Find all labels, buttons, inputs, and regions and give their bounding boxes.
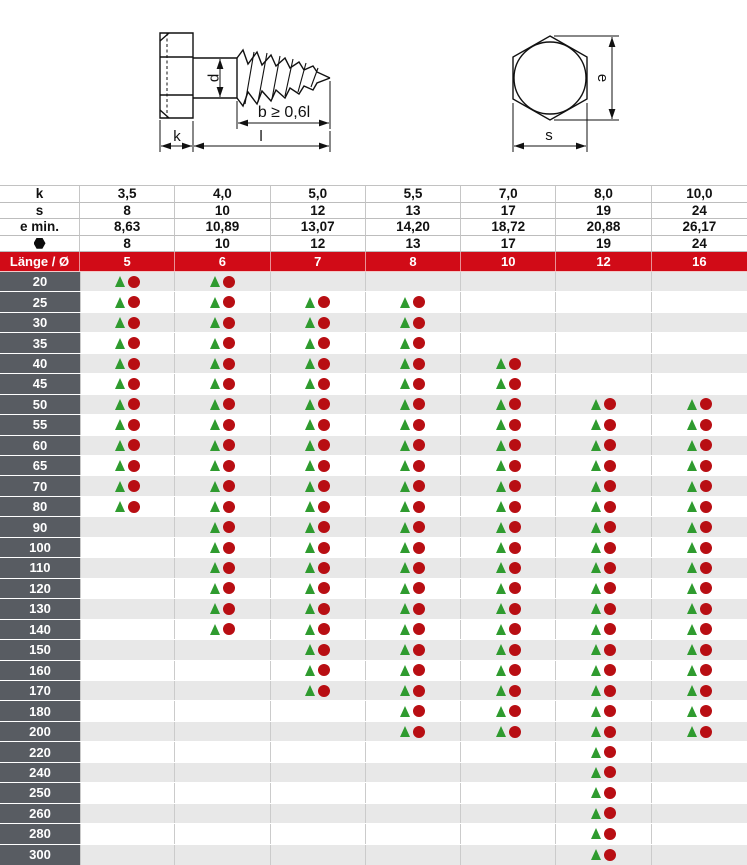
- availability-cell: [652, 374, 747, 393]
- spec-value: 17: [461, 236, 556, 253]
- red-circle-marker: [318, 603, 330, 615]
- dim-label-e: e: [594, 74, 611, 82]
- availability-cell: [175, 722, 270, 741]
- spec-value: 14,20: [366, 219, 461, 236]
- red-circle-marker: [318, 419, 330, 431]
- availability-cell: [175, 640, 270, 659]
- availability-cell: [556, 722, 651, 741]
- availability-cell: [652, 599, 747, 618]
- green-triangle-marker: [496, 378, 506, 389]
- availability-cell: [461, 538, 556, 557]
- availability-cell: [175, 742, 270, 761]
- availability-cell: [556, 640, 651, 659]
- red-circle-marker: [318, 358, 330, 370]
- spec-value: 24: [652, 203, 747, 220]
- green-triangle-marker: [591, 685, 601, 696]
- red-circle-marker: [604, 480, 616, 492]
- red-circle-marker: [604, 685, 616, 697]
- red-circle-marker: [700, 644, 712, 656]
- availability-cell: [556, 292, 651, 311]
- availability-cell: [366, 579, 461, 598]
- availability-cell: [271, 804, 366, 823]
- green-triangle-marker: [115, 378, 125, 389]
- availability-cell: [175, 292, 270, 311]
- availability-cell: [556, 742, 651, 761]
- spec-value: 19: [556, 236, 651, 253]
- red-circle-marker: [700, 726, 712, 738]
- red-circle-marker: [509, 480, 521, 492]
- red-circle-marker: [223, 623, 235, 635]
- length-label: 170: [0, 681, 80, 700]
- red-circle-marker: [318, 460, 330, 472]
- availability-cell: [366, 681, 461, 700]
- availability-cell: [652, 517, 747, 536]
- availability-cell: [175, 804, 270, 823]
- green-triangle-marker: [496, 583, 506, 594]
- availability-cell: [271, 845, 366, 865]
- spec-value: 3,5: [80, 186, 175, 203]
- green-triangle-marker: [400, 297, 410, 308]
- green-triangle-marker: [496, 440, 506, 451]
- availability-cell: [271, 701, 366, 720]
- green-triangle-marker: [496, 726, 506, 737]
- availability-cell: [652, 395, 747, 414]
- availability-cell: [271, 558, 366, 577]
- diameter-value: 16: [652, 252, 747, 271]
- hex-nut-icon: [34, 238, 46, 249]
- red-circle-marker: [509, 562, 521, 574]
- length-label: 50: [0, 395, 80, 414]
- spec-value: 8: [80, 203, 175, 220]
- availability-cell: [80, 292, 175, 311]
- green-triangle-marker: [591, 706, 601, 717]
- availability-cell: [80, 517, 175, 536]
- availability-cell: [175, 783, 270, 802]
- green-triangle-marker: [305, 297, 315, 308]
- availability-cell: [461, 845, 556, 865]
- availability-cell: [461, 354, 556, 373]
- availability-cell: [175, 681, 270, 700]
- availability-cell: [366, 620, 461, 639]
- green-triangle-marker: [591, 644, 601, 655]
- green-triangle-marker: [305, 542, 315, 553]
- green-triangle-marker: [210, 562, 220, 573]
- availability-cell: [652, 824, 747, 843]
- green-triangle-marker: [115, 338, 125, 349]
- red-circle-marker: [318, 664, 330, 676]
- spec-value: 26,17: [652, 219, 747, 236]
- green-triangle-marker: [305, 338, 315, 349]
- availability-cell: [652, 845, 747, 865]
- length-label: 90: [0, 517, 80, 536]
- green-triangle-marker: [210, 460, 220, 471]
- red-circle-marker: [413, 296, 425, 308]
- availability-cell: [461, 763, 556, 782]
- availability-cell: [80, 824, 175, 843]
- availability-cell: [175, 763, 270, 782]
- length-label: 160: [0, 661, 80, 680]
- red-circle-marker: [128, 501, 140, 513]
- green-triangle-marker: [591, 419, 601, 430]
- availability-cell: [80, 640, 175, 659]
- length-label: 25: [0, 292, 80, 311]
- availability-cell: [652, 313, 747, 332]
- spec-label-wrench-size: [0, 236, 80, 253]
- availability-cell: [556, 824, 651, 843]
- length-row-35: 35: [0, 333, 747, 353]
- length-row-30: 30: [0, 313, 747, 333]
- dim-label-s: s: [545, 127, 553, 144]
- availability-cell: [80, 579, 175, 598]
- availability-cell: [271, 538, 366, 557]
- dim-label-l: l: [259, 128, 262, 145]
- red-circle-marker: [509, 419, 521, 431]
- availability-cell: [652, 681, 747, 700]
- red-circle-marker: [318, 296, 330, 308]
- length-row-170: 170: [0, 681, 747, 701]
- green-triangle-marker: [591, 767, 601, 778]
- green-triangle-marker: [591, 665, 601, 676]
- availability-cell: [271, 456, 366, 475]
- availability-cell: [652, 701, 747, 720]
- availability-cell: [80, 763, 175, 782]
- red-circle-marker: [700, 562, 712, 574]
- green-triangle-marker: [400, 317, 410, 328]
- red-circle-marker: [604, 828, 616, 840]
- green-triangle-marker: [496, 685, 506, 696]
- green-triangle-marker: [400, 460, 410, 471]
- red-circle-marker: [604, 419, 616, 431]
- red-circle-marker: [509, 582, 521, 594]
- green-triangle-marker: [400, 706, 410, 717]
- green-triangle-marker: [305, 378, 315, 389]
- availability-cell: [556, 476, 651, 495]
- green-triangle-marker: [400, 378, 410, 389]
- red-circle-marker: [604, 664, 616, 676]
- green-triangle-marker: [496, 665, 506, 676]
- length-row-140: 140: [0, 620, 747, 640]
- red-circle-marker: [413, 603, 425, 615]
- availability-cell: [556, 620, 651, 639]
- availability-cell: [175, 579, 270, 598]
- diameter-value: 8: [366, 252, 461, 271]
- length-label: 35: [0, 333, 80, 352]
- red-circle-marker: [604, 746, 616, 758]
- availability-cell: [80, 395, 175, 414]
- red-circle-marker: [604, 705, 616, 717]
- spec-value: 12: [271, 203, 366, 220]
- availability-cell: [461, 395, 556, 414]
- red-circle-marker: [604, 562, 616, 574]
- green-triangle-marker: [591, 542, 601, 553]
- availability-cell: [556, 661, 651, 680]
- availability-cell: [175, 497, 270, 516]
- green-triangle-marker: [591, 726, 601, 737]
- availability-cell: [80, 558, 175, 577]
- availability-cell: [366, 395, 461, 414]
- green-triangle-marker: [400, 358, 410, 369]
- red-circle-marker: [128, 480, 140, 492]
- green-triangle-marker: [115, 358, 125, 369]
- availability-cell: [556, 456, 651, 475]
- availability-cell: [461, 497, 556, 516]
- green-triangle-marker: [496, 542, 506, 553]
- availability-cell: [556, 374, 651, 393]
- green-triangle-marker: [591, 747, 601, 758]
- availability-cell: [652, 415, 747, 434]
- length-row-55: 55: [0, 415, 747, 435]
- length-row-250: 250: [0, 783, 747, 803]
- green-triangle-marker: [400, 419, 410, 430]
- availability-cell: [80, 599, 175, 618]
- green-triangle-marker: [210, 378, 220, 389]
- green-triangle-marker: [591, 583, 601, 594]
- availability-cell: [461, 415, 556, 434]
- availability-cell: [271, 272, 366, 291]
- length-row-200: 200: [0, 722, 747, 742]
- red-circle-marker: [223, 582, 235, 594]
- green-triangle-marker: [496, 501, 506, 512]
- red-circle-marker: [318, 439, 330, 451]
- availability-cell: [366, 333, 461, 352]
- length-row-25: 25: [0, 292, 747, 312]
- spec-label-head-height: k: [0, 186, 80, 203]
- red-circle-marker: [700, 460, 712, 472]
- green-triangle-marker: [591, 828, 601, 839]
- green-triangle-marker: [210, 501, 220, 512]
- green-triangle-marker: [591, 399, 601, 410]
- green-triangle-marker: [687, 501, 697, 512]
- red-circle-marker: [509, 521, 521, 533]
- availability-cell: [461, 599, 556, 618]
- green-triangle-marker: [687, 562, 697, 573]
- green-triangle-marker: [115, 276, 125, 287]
- red-circle-marker: [128, 398, 140, 410]
- length-label: 260: [0, 804, 80, 823]
- head-dimension-header: k3,54,05,05,57,08,010,0s8101213171924e m…: [0, 185, 747, 252]
- availability-cell: [80, 476, 175, 495]
- availability-cell: [271, 661, 366, 680]
- availability-cell: [652, 538, 747, 557]
- length-row-150: 150: [0, 640, 747, 660]
- availability-cell: [461, 661, 556, 680]
- length-label: 110: [0, 558, 80, 577]
- length-label: 240: [0, 763, 80, 782]
- green-triangle-marker: [305, 501, 315, 512]
- spec-value: 10: [175, 236, 270, 253]
- availability-cell: [556, 517, 651, 536]
- availability-cell: [175, 599, 270, 618]
- availability-cell: [652, 476, 747, 495]
- green-triangle-marker: [210, 276, 220, 287]
- availability-cell: [80, 783, 175, 802]
- green-triangle-marker: [687, 522, 697, 533]
- green-triangle-marker: [496, 399, 506, 410]
- length-row-70: 70: [0, 476, 747, 496]
- green-triangle-marker: [400, 665, 410, 676]
- green-triangle-marker: [687, 706, 697, 717]
- availability-cell: [175, 824, 270, 843]
- green-triangle-marker: [305, 460, 315, 471]
- red-circle-marker: [318, 521, 330, 533]
- green-triangle-marker: [305, 644, 315, 655]
- green-triangle-marker: [496, 706, 506, 717]
- availability-cell: [652, 804, 747, 823]
- green-triangle-marker: [400, 685, 410, 696]
- availability-cell: [461, 579, 556, 598]
- availability-cell: [175, 661, 270, 680]
- availability-cell: [271, 374, 366, 393]
- availability-cell: [80, 620, 175, 639]
- green-triangle-marker: [687, 542, 697, 553]
- spec-value: 24: [652, 236, 747, 253]
- green-triangle-marker: [400, 562, 410, 573]
- availability-cell: [461, 333, 556, 352]
- red-circle-marker: [509, 398, 521, 410]
- length-row-50: 50: [0, 395, 747, 415]
- green-triangle-marker: [400, 624, 410, 635]
- red-circle-marker: [413, 664, 425, 676]
- availability-cell: [461, 476, 556, 495]
- green-triangle-marker: [687, 419, 697, 430]
- availability-cell: [652, 497, 747, 516]
- green-triangle-marker: [400, 583, 410, 594]
- green-triangle-marker: [687, 644, 697, 655]
- availability-cell: [461, 681, 556, 700]
- length-label: 120: [0, 579, 80, 598]
- green-triangle-marker: [496, 460, 506, 471]
- spec-value: 20,88: [556, 219, 651, 236]
- red-circle-marker: [509, 726, 521, 738]
- red-circle-marker: [604, 787, 616, 799]
- green-triangle-marker: [305, 419, 315, 430]
- red-circle-marker: [509, 623, 521, 635]
- green-triangle-marker: [687, 603, 697, 614]
- green-triangle-marker: [496, 644, 506, 655]
- dim-label-k: k: [173, 128, 181, 145]
- availability-cell: [271, 783, 366, 802]
- availability-cell: [80, 333, 175, 352]
- green-triangle-marker: [591, 624, 601, 635]
- length-row-20: 20: [0, 272, 747, 292]
- length-row-300: 300: [0, 845, 747, 865]
- green-triangle-marker: [400, 522, 410, 533]
- green-triangle-marker: [591, 522, 601, 533]
- spec-row-head-height: k3,54,05,05,57,08,010,0: [0, 186, 747, 203]
- availability-cell: [175, 538, 270, 557]
- availability-cell: [271, 681, 366, 700]
- spec-value: 7,0: [461, 186, 556, 203]
- green-triangle-marker: [305, 317, 315, 328]
- availability-cell: [556, 538, 651, 557]
- red-circle-marker: [604, 807, 616, 819]
- availability-cell: [461, 742, 556, 761]
- red-circle-marker: [413, 562, 425, 574]
- length-row-45: 45: [0, 374, 747, 394]
- availability-cell: [652, 722, 747, 741]
- spec-value: 13: [366, 236, 461, 253]
- green-triangle-marker: [210, 399, 220, 410]
- availability-cell: [80, 436, 175, 455]
- availability-cell: [271, 824, 366, 843]
- availability-cell: [556, 415, 651, 434]
- availability-cell: [461, 272, 556, 291]
- length-label: 250: [0, 783, 80, 802]
- green-triangle-marker: [115, 317, 125, 328]
- spec-value: 12: [271, 236, 366, 253]
- red-circle-marker: [413, 521, 425, 533]
- length-row-110: 110: [0, 558, 747, 578]
- red-circle-marker: [509, 378, 521, 390]
- green-triangle-marker: [591, 460, 601, 471]
- green-triangle-marker: [115, 399, 125, 410]
- length-row-80: 80: [0, 497, 747, 517]
- green-triangle-marker: [305, 562, 315, 573]
- availability-cell: [556, 681, 651, 700]
- spec-value: 18,72: [461, 219, 556, 236]
- diameter-header-row: Länge / Ø5678101216: [0, 252, 747, 272]
- availability-cell: [366, 436, 461, 455]
- red-circle-marker: [413, 337, 425, 349]
- red-circle-marker: [318, 501, 330, 513]
- green-triangle-marker: [687, 399, 697, 410]
- availability-cell: [271, 395, 366, 414]
- availability-cell: [461, 517, 556, 536]
- green-triangle-marker: [496, 522, 506, 533]
- availability-cell: [271, 620, 366, 639]
- red-circle-marker: [604, 849, 616, 861]
- red-circle-marker: [318, 582, 330, 594]
- availability-cell: [271, 517, 366, 536]
- green-triangle-marker: [305, 685, 315, 696]
- availability-cell: [271, 722, 366, 741]
- red-circle-marker: [223, 378, 235, 390]
- green-triangle-marker: [305, 583, 315, 594]
- availability-cell: [461, 456, 556, 475]
- red-circle-marker: [128, 460, 140, 472]
- red-circle-marker: [318, 542, 330, 554]
- availability-cell: [652, 742, 747, 761]
- red-circle-marker: [128, 358, 140, 370]
- green-triangle-marker: [400, 440, 410, 451]
- green-triangle-marker: [687, 460, 697, 471]
- red-circle-marker: [700, 705, 712, 717]
- green-triangle-marker: [687, 440, 697, 451]
- availability-cell: [461, 701, 556, 720]
- red-circle-marker: [604, 542, 616, 554]
- diameter-value: 6: [175, 252, 270, 271]
- red-circle-marker: [413, 501, 425, 513]
- green-triangle-marker: [305, 481, 315, 492]
- red-circle-marker: [700, 501, 712, 513]
- length-label: 150: [0, 640, 80, 659]
- red-circle-marker: [509, 664, 521, 676]
- green-triangle-marker: [687, 624, 697, 635]
- green-triangle-marker: [687, 583, 697, 594]
- green-triangle-marker: [400, 542, 410, 553]
- availability-cell: [556, 845, 651, 865]
- green-triangle-marker: [210, 583, 220, 594]
- spec-value: 19: [556, 203, 651, 220]
- green-triangle-marker: [496, 358, 506, 369]
- availability-cell: [556, 395, 651, 414]
- red-circle-marker: [700, 398, 712, 410]
- red-circle-marker: [413, 644, 425, 656]
- spec-row-across-flats: s8101213171924: [0, 203, 747, 220]
- green-triangle-marker: [687, 481, 697, 492]
- availability-cell: [271, 313, 366, 332]
- length-label: 100: [0, 538, 80, 557]
